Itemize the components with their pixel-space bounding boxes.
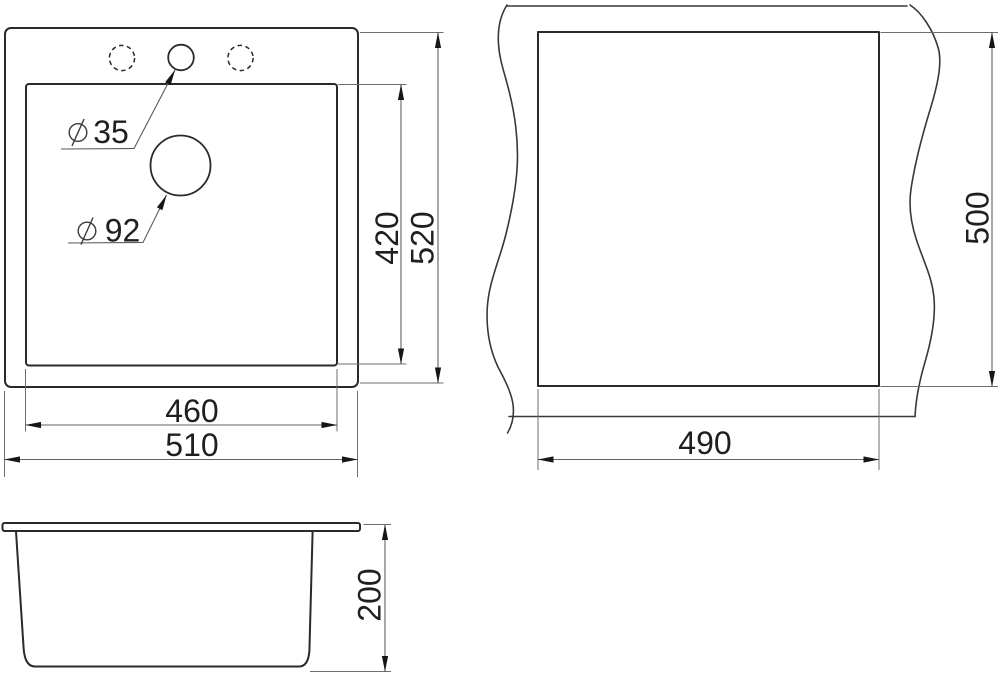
sink-bowl-profile: [16, 532, 313, 667]
faucet-hole-diameter-label: 35: [93, 114, 129, 150]
faucet-hole-right-dashed: [228, 45, 253, 70]
break-line-left-wavy: [487, 5, 517, 433]
dim-label-cutout-height: 500: [960, 191, 996, 244]
drain-hole-diameter-label: 92: [105, 213, 141, 249]
dim-label-bowl-depth: 200: [352, 568, 388, 621]
diameter-symbol-icon: [69, 120, 87, 146]
dim-label-outer-width: 510: [165, 427, 218, 463]
break-line-right-wavy: [910, 5, 940, 417]
dim-label-inner-width: 460: [165, 393, 218, 429]
sink-dimension-drawing: 35 92 420 520 460: [0, 0, 1000, 674]
technical-drawing-page: 35 92 420 520 460: [0, 0, 1000, 674]
drain-hole: [151, 136, 211, 196]
dim-label-inner-height: 420: [369, 211, 405, 264]
cutout-rectangle: [538, 32, 879, 386]
top-view: 35 92 420 520 460: [5, 28, 444, 477]
side-view: 200: [3, 523, 392, 672]
faucet-hole-center: [168, 45, 194, 71]
sink-outer-rim-outline: [5, 28, 358, 387]
dim-label-outer-height: 520: [405, 211, 441, 264]
diameter-symbol-icon: [78, 218, 96, 244]
sink-flange-profile: [3, 523, 361, 531]
cutout-view: 500 490: [487, 5, 998, 470]
faucet-hole-left-dashed: [109, 45, 134, 70]
dim-label-cutout-width: 490: [678, 425, 731, 461]
